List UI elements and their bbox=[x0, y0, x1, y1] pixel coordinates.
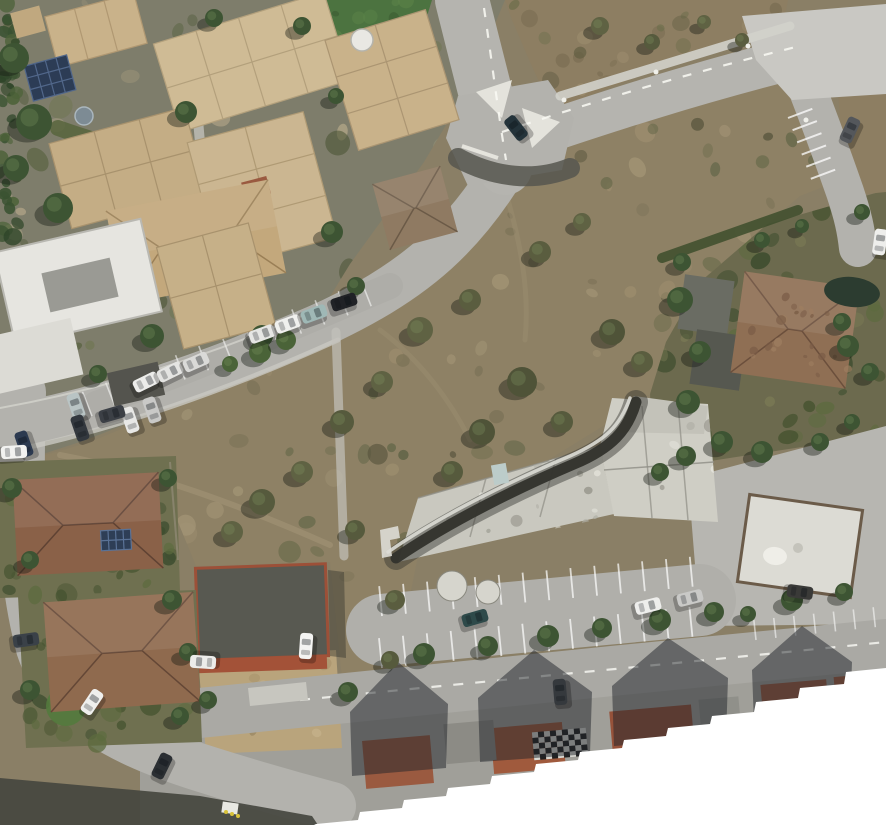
white-dome-gazebo bbox=[351, 29, 373, 51]
light-pole-3 bbox=[746, 44, 751, 49]
car-icon bbox=[190, 650, 221, 670]
light-pole-1 bbox=[562, 98, 567, 103]
light-pole-2 bbox=[654, 70, 659, 75]
commercial-building-shadow bbox=[328, 570, 346, 658]
trampoline bbox=[75, 107, 93, 125]
car-icon bbox=[298, 633, 318, 664]
bottom-marker-dot-3 bbox=[236, 814, 240, 818]
car-icon bbox=[0, 445, 28, 465]
orthophoto-stage bbox=[0, 0, 886, 825]
se-white-building-vent bbox=[793, 543, 803, 553]
villa-sw2-roof bbox=[43, 592, 200, 712]
villa-sw1-solar bbox=[100, 529, 131, 551]
bottom-marker-dot-1 bbox=[224, 810, 228, 814]
light-pole-4 bbox=[804, 118, 809, 123]
bottom-marker-plate bbox=[221, 801, 238, 814]
car-icon bbox=[552, 678, 572, 709]
bottom-marker-dot-2 bbox=[230, 812, 234, 816]
orthophoto-canvas bbox=[0, 0, 886, 825]
building-tank-2 bbox=[476, 580, 500, 604]
building-tank-1 bbox=[437, 571, 467, 601]
